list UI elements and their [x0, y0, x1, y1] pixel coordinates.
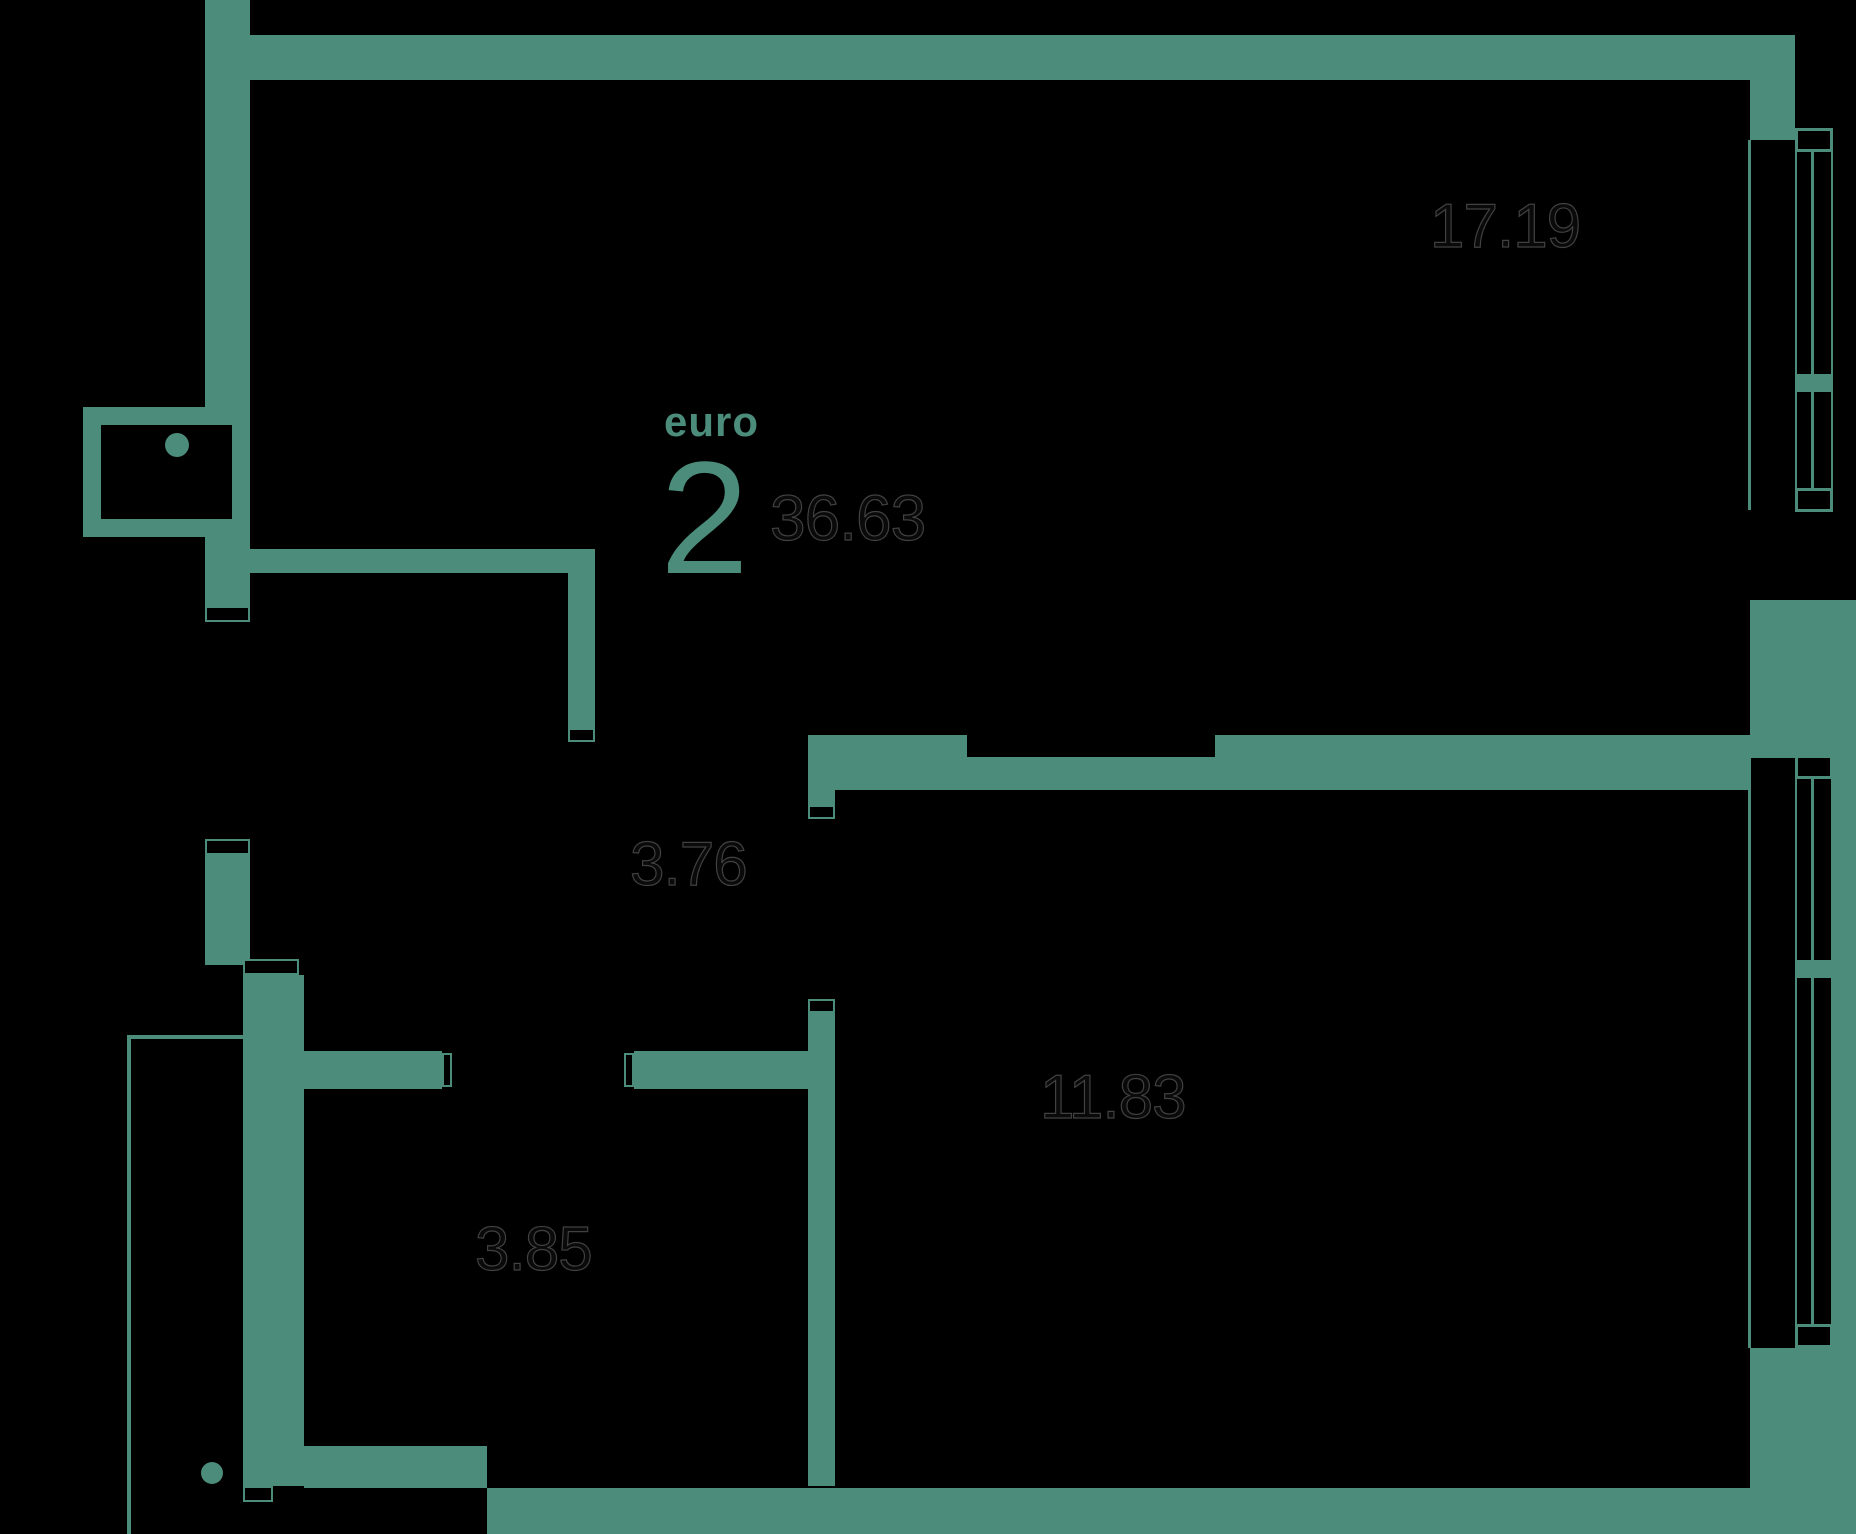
partition-mid-vertical	[808, 1013, 835, 1486]
wall-left-lower	[243, 975, 304, 1486]
wall-bottom-left-step	[304, 1446, 487, 1488]
door-jamb-room-left	[442, 1053, 452, 1087]
window-1-wall-face-line	[1748, 140, 1751, 510]
entry-vent-dot	[201, 1462, 223, 1484]
wall-recess	[967, 735, 1215, 757]
window-2-cap-bottom	[1795, 1324, 1833, 1348]
window-1-cap-top	[1795, 128, 1833, 152]
area-label-hallway: 3.76	[630, 834, 747, 896]
door-jamb-left-lower	[243, 959, 299, 975]
wall-right-top	[1750, 35, 1795, 140]
partition-room-left	[304, 1051, 442, 1089]
door-jamb-mid-vertical-top	[808, 999, 835, 1013]
window-1-cap-bottom	[1795, 488, 1833, 512]
balcony-line-horizontal	[127, 1035, 245, 1039]
window-2-wall-face-line	[1748, 755, 1751, 1348]
window-2-divider	[1795, 960, 1833, 978]
area-label-bathroom: 3.85	[475, 1219, 592, 1281]
partition-topleft-vertical	[568, 549, 595, 728]
unit-total-area: 36.63	[770, 486, 925, 550]
window-2-frame	[1795, 755, 1833, 1348]
door-jamb-room-right	[624, 1053, 634, 1087]
partition-room-right	[634, 1051, 808, 1089]
shaft-vent-dot	[165, 433, 189, 457]
area-label-living-room: 17.19	[1430, 196, 1580, 258]
balcony-line-vertical	[127, 1035, 131, 1534]
unit-rooms-count: 2	[660, 438, 749, 598]
door-jamb-left-mid	[205, 839, 250, 855]
window-1-frame	[1795, 128, 1833, 512]
door-jamb-stub-bottom	[808, 805, 835, 819]
partition-topleft-horizontal	[250, 549, 595, 573]
wall-bottom	[487, 1488, 1856, 1534]
door-jamb-entry	[243, 1486, 273, 1502]
partition-mid-stub	[808, 735, 835, 805]
window-1-divider	[1795, 374, 1833, 392]
area-label-bedroom: 11.83	[1040, 1067, 1186, 1129]
floor-plan: euro 2 36.63 17.19 3.76 11.83 3.85	[0, 0, 1856, 1534]
window-1-glass-line	[1811, 152, 1814, 488]
wall-top	[205, 35, 1795, 80]
door-jamb-topleft-partition	[568, 728, 595, 742]
shaft-box	[83, 407, 250, 537]
door-jamb-left-top	[205, 606, 250, 622]
wall-right-mid	[1750, 600, 1856, 758]
wall-left-mid	[205, 855, 250, 965]
window-2-glass-line	[1811, 779, 1814, 1324]
window-2-cap-top	[1795, 755, 1833, 779]
